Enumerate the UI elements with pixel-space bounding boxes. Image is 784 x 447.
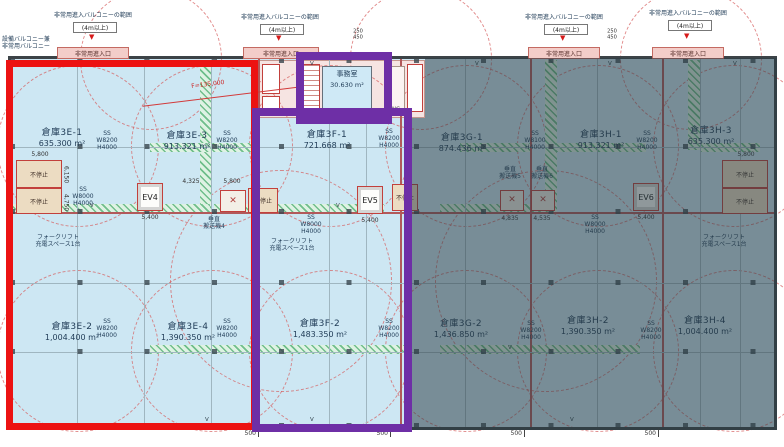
purple-highlight-rect-3f (252, 108, 412, 432)
entry-label: 非常用進入口 (546, 49, 582, 58)
range-label: 非常用進入バルコニーの範囲 (504, 14, 624, 21)
entry-label: 非常用進入口 (75, 49, 111, 58)
dim-250-450: 250 450 (604, 29, 621, 40)
down-triangle-icon: ▼ (89, 34, 94, 41)
range-min-box: (4m以上) (668, 20, 712, 31)
floor-plan-canvas: 事務室 30.630 m² WC EV4 EV5 EV6 5,400 5,400… (0, 0, 784, 447)
emergency-entry: 非常用進入口 (57, 47, 129, 59)
range-label: 非常用進入バルコニーの範囲 (220, 14, 340, 21)
range-min-box: (4m以上) (260, 24, 304, 35)
range-label: 非常用進入バルコニーの範囲 (33, 12, 153, 19)
dim-250-450: 250 450 (350, 29, 367, 40)
range-min-box: (4m以上) (544, 24, 588, 35)
dim-500: 500 (492, 431, 522, 438)
red-highlight-rect (6, 60, 258, 430)
down-triangle-icon: ▼ (276, 35, 281, 42)
range-label: 非常用進入バルコニーの範囲 (628, 10, 748, 17)
dim-500: 500 (626, 431, 656, 438)
down-triangle-icon: ▼ (684, 33, 689, 40)
entry-label: 非常用進入口 (263, 49, 299, 58)
dim-overlay-main (404, 118, 777, 430)
down-triangle-icon: ▼ (560, 35, 565, 42)
range-min-box: (4m以上) (73, 22, 117, 33)
core-room (407, 64, 423, 112)
dim-overlay-top (425, 58, 777, 118)
entry-label: 非常用進入口 (670, 49, 706, 58)
